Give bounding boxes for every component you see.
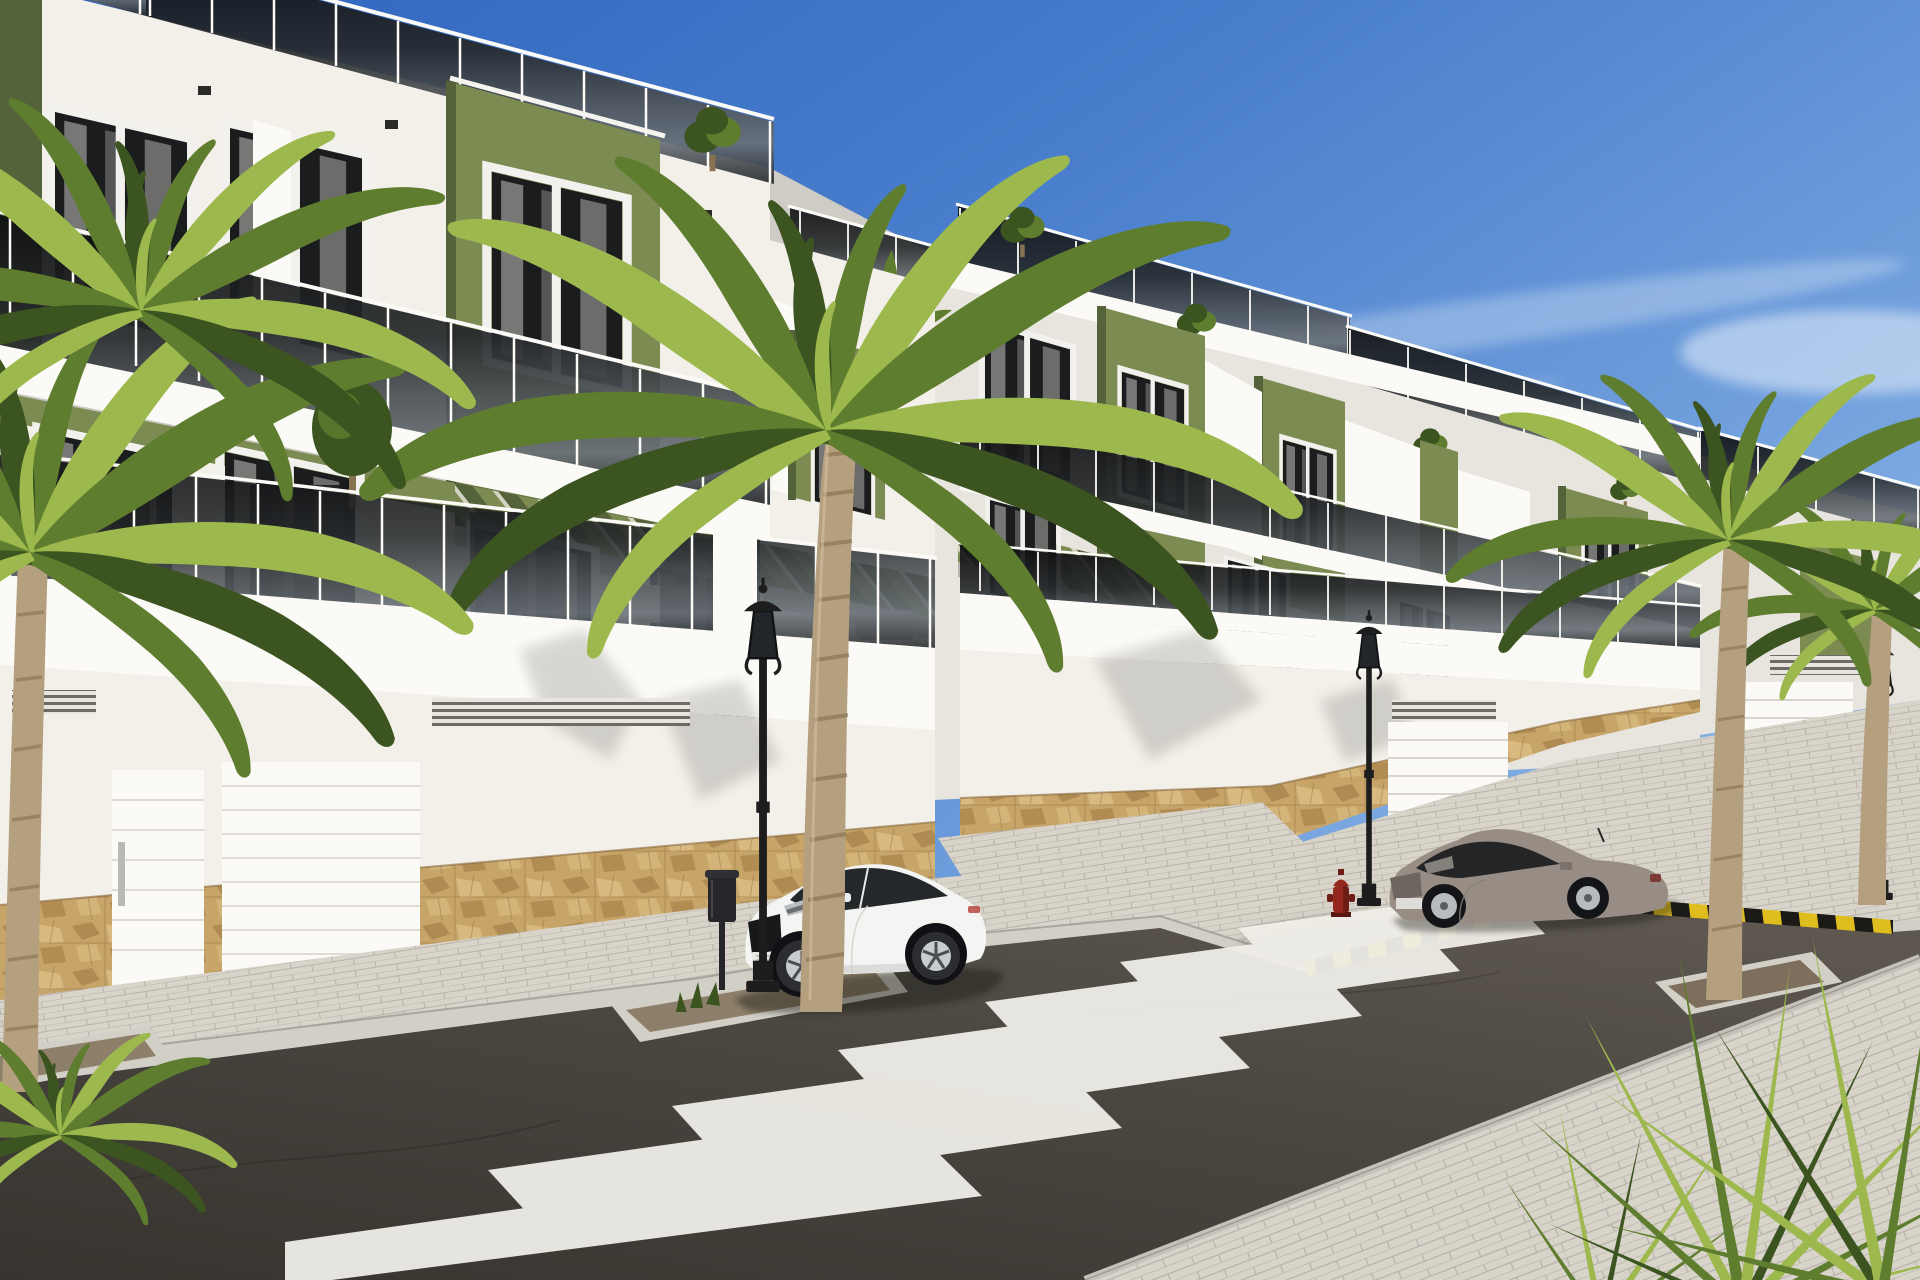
pedestrian-door — [112, 770, 204, 992]
wall-light — [198, 86, 211, 95]
wall-light — [385, 120, 398, 129]
street-scene-render: Sunny street-level render of new-build w… — [0, 0, 1920, 1280]
vent-grille — [432, 698, 690, 726]
vent-grille — [1392, 700, 1496, 720]
